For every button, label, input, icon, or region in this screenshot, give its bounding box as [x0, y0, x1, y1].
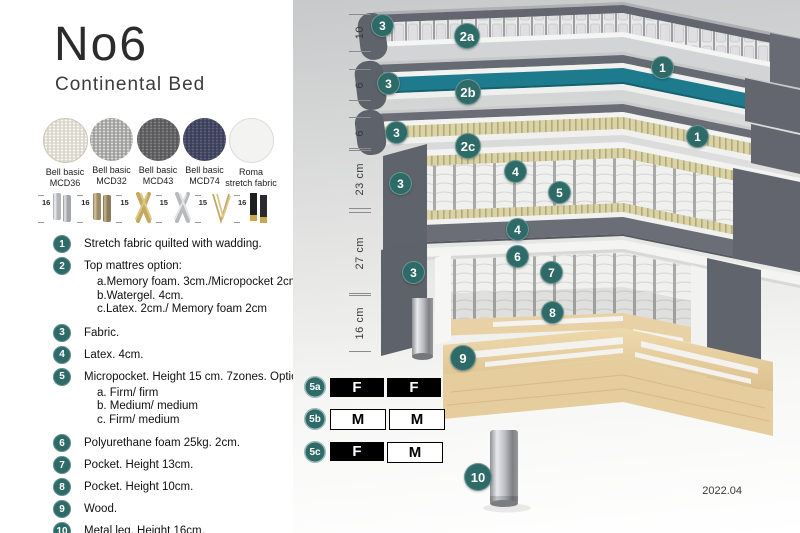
- callout-2a: 2a: [454, 23, 480, 49]
- feature-item-4: 4 Latex. 4cm.: [53, 345, 285, 365]
- feature-badge: 3: [53, 324, 71, 342]
- fabric-swatch-icon: [90, 118, 133, 161]
- swatch-mcd32: Bell basicMCD32: [91, 118, 133, 189]
- feature-options: a.Memory foam. 3cm./Micropocket 2cm b.Wa…: [97, 276, 298, 317]
- swatch-mcd36: Bell basicMCD36: [44, 118, 86, 189]
- feature-text: Pocket. Height 13cm.: [84, 455, 193, 475]
- page-subtitle: Continental Bed: [55, 74, 293, 96]
- feature-item-6: 6 Polyurethane foam 25kg. 2cm.: [53, 433, 285, 453]
- cylinder-black-gold-leg-icon: [247, 190, 271, 226]
- firmness-cell: M: [387, 442, 443, 463]
- feature-badge: 10: [53, 522, 71, 533]
- leg-option-cross-silver: 15: [160, 190, 196, 226]
- swatch-mcd43: Bell basicMCD43: [137, 118, 179, 189]
- leg-option-cross-gold: 15: [120, 190, 156, 226]
- feature-badge: 7: [53, 456, 71, 474]
- cross-gold-leg-icon: [130, 190, 156, 226]
- callout-6: 6: [506, 245, 529, 268]
- feature-text: Pocket. Height 10cm.: [84, 477, 193, 497]
- callout-9: 9: [450, 345, 476, 371]
- dimension-base-box: 27 cm: [345, 212, 375, 294]
- fabric-swatch-icon: [229, 118, 274, 163]
- feature-item-9: 9 Wood.: [53, 499, 285, 519]
- leg-option-cylinder-bronze: 16: [81, 190, 117, 226]
- callout-4-top: 4: [504, 160, 527, 183]
- leg-options: 16 16 15 15: [42, 190, 274, 226]
- fabric-swatches: Bell basicMCD36 Bell basicMCD32 Bell bas…: [44, 118, 272, 189]
- feature-badge: 4: [53, 346, 71, 364]
- feature-badge: 2: [53, 257, 71, 275]
- callout-3-watergel: 3: [377, 72, 400, 95]
- swatch-mcd74: Bell basicMCD74: [184, 118, 226, 189]
- cylinder-bronze-leg-icon: [91, 190, 115, 226]
- fabric-swatch-icon: [137, 118, 180, 161]
- feature-text: Polyurethane foam 25kg. 2cm.: [84, 433, 240, 453]
- callout-3-mattress: 3: [389, 172, 412, 195]
- feature-badge: 1: [53, 235, 71, 253]
- feature-item-10: 10 Metal leg. Height 16cm.: [53, 521, 285, 533]
- cross-silver-leg-icon: [169, 190, 195, 226]
- feature-text: Metal leg. Height 16cm.: [84, 521, 205, 533]
- feature-item-3: 3 Fabric.: [53, 323, 285, 343]
- feature-text: Wood.: [84, 499, 117, 519]
- firmness-row-5a: 5a F F: [304, 376, 441, 398]
- callout-1-lower: 1: [686, 125, 709, 148]
- feature-badge: 5: [53, 368, 71, 386]
- hairpin-gold-leg-icon: [208, 190, 234, 226]
- firmness-cell: F: [387, 378, 441, 397]
- callout-10: 10: [464, 463, 492, 491]
- firmness-row-5b: 5b M M: [304, 408, 445, 430]
- callout-5: 5: [548, 181, 571, 204]
- callout-3-top: 3: [371, 14, 394, 37]
- feature-item-7: 7 Pocket. Height 13cm.: [53, 455, 285, 475]
- dimension-legs: 16 cm: [345, 295, 375, 352]
- feature-badge: 6: [53, 434, 71, 452]
- callout-2b: 2b: [455, 79, 481, 105]
- fabric-swatch-icon: [43, 118, 88, 163]
- diagram-panel: 10 6 6 23 cm 27 cm 16 cm 3 2a 1 3 2b 1 3…: [293, 0, 800, 533]
- callout-1-upper: 1: [651, 56, 674, 79]
- callout-3-latex: 3: [385, 121, 408, 144]
- version-text: 2022.04: [702, 485, 742, 497]
- cylinder-silver-leg-icon: [51, 190, 75, 226]
- callout-2c: 2c: [455, 133, 481, 159]
- feature-item-2: 2 Top mattres option: a.Memory foam. 3cm…: [53, 256, 285, 321]
- dimension-latex: 6: [345, 117, 375, 149]
- callout-7: 7: [540, 261, 563, 284]
- feature-options: a. Firm/ firm b. Medium/ medium c. Firm/…: [97, 387, 307, 428]
- dimension-micropocket: 23 cm: [345, 150, 375, 209]
- leg-option-cylinder-silver: 16: [42, 190, 78, 226]
- firmness-badge: 5b: [304, 408, 326, 430]
- feature-text: Micropocket. Height 15 cm. 7zones. Optio…: [84, 367, 307, 387]
- page-title: No6: [54, 20, 293, 70]
- feature-text: Latex. 4cm.: [84, 345, 143, 365]
- feature-badge: 8: [53, 478, 71, 496]
- firmness-badge: 5a: [304, 376, 326, 398]
- firmness-cell: F: [330, 442, 384, 461]
- leg-option-hairpin-gold: 15: [199, 190, 235, 226]
- feature-item-5: 5 Micropocket. Height 15 cm. 7zones. Opt…: [53, 367, 285, 432]
- feature-badge: 9: [53, 500, 71, 518]
- callout-4-bottom: 4: [506, 218, 529, 241]
- feature-text: Fabric.: [84, 323, 119, 343]
- firmness-cell: F: [330, 378, 384, 397]
- firmness-badge: 5c: [304, 441, 326, 463]
- feature-item-1: 1 Stretch fabric quilted with wadding.: [53, 234, 285, 254]
- feature-text: Top mattres option:: [84, 256, 298, 276]
- firmness-cell: M: [389, 409, 445, 430]
- firmness-row-5c: 5c F M: [304, 441, 443, 463]
- leg-option-cylinder-black-gold: 16: [238, 190, 274, 226]
- callout-8: 8: [541, 301, 564, 324]
- feature-text: Stretch fabric quilted with wadding.: [84, 234, 262, 254]
- product-sheet: No6 Continental Bed Bell basicMCD36 Bell…: [0, 0, 800, 533]
- feature-item-8: 8 Pocket. Height 10cm.: [53, 477, 285, 497]
- firmness-cell: M: [330, 409, 386, 430]
- metal-leg-back: [412, 298, 433, 360]
- callout-3-base: 3: [402, 261, 425, 284]
- fabric-swatch-icon: [183, 118, 226, 161]
- dimension-watergel: 6: [345, 69, 375, 101]
- swatch-roma: Romastretch fabric: [230, 118, 272, 189]
- info-panel: No6 Continental Bed Bell basicMCD36 Bell…: [0, 0, 293, 533]
- feature-list: 1 Stretch fabric quilted with wadding. 2…: [53, 234, 285, 533]
- dimension-top-mattress: 10: [345, 14, 375, 52]
